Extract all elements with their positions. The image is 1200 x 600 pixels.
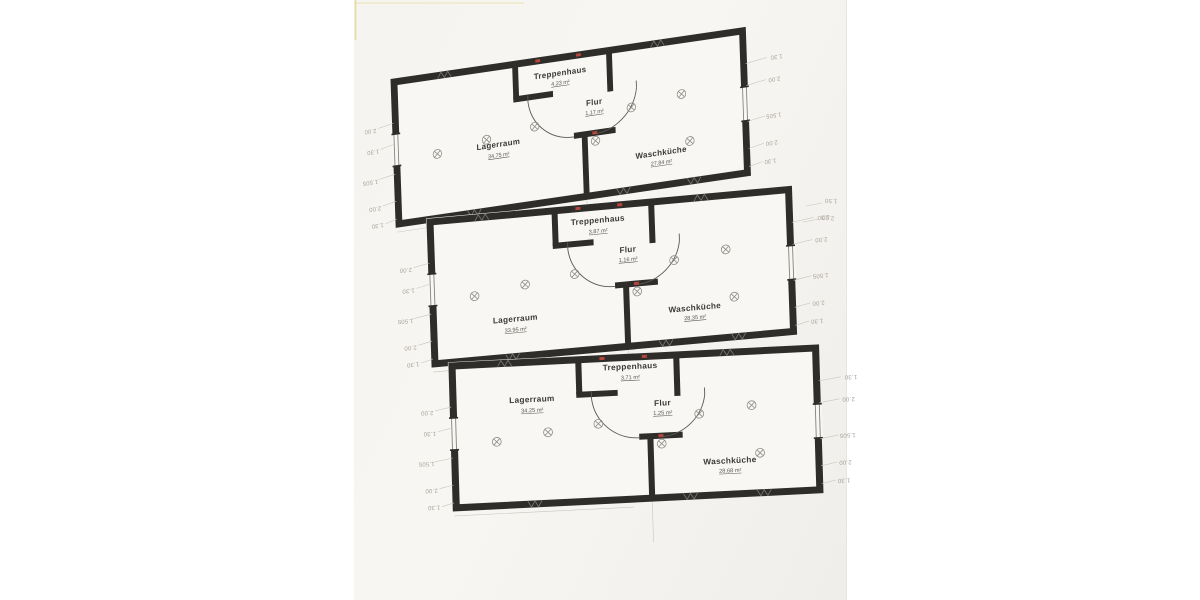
floor-plan-bottom: Treppenhaus 3.71 m² Flur 1.25 m² Lagerra… (415, 342, 862, 554)
room-label-flur: Flur (654, 398, 672, 408)
room-area-waschkueche: 28.68 m² (719, 468, 742, 475)
room-area-lagerraum: 34.25 m² (521, 408, 544, 415)
dimension-label: 1.50 (824, 197, 837, 204)
scan-page-container: 1.30 2.00 1.505 2.00 1.30 2.00 1.30 1.50… (0, 0, 1200, 600)
room-area-flur: 1.25 m² (653, 410, 672, 417)
dimension-label: 2.00 (821, 214, 834, 221)
floor-walls (415, 342, 862, 554)
room-area-treppenhaus: 3.71 m² (621, 375, 640, 382)
room-label-flur: Flur (619, 244, 636, 255)
floor-plan-drawing: 1.30 2.00 1.505 2.00 1.30 2.00 1.30 1.50… (0, 0, 1200, 600)
